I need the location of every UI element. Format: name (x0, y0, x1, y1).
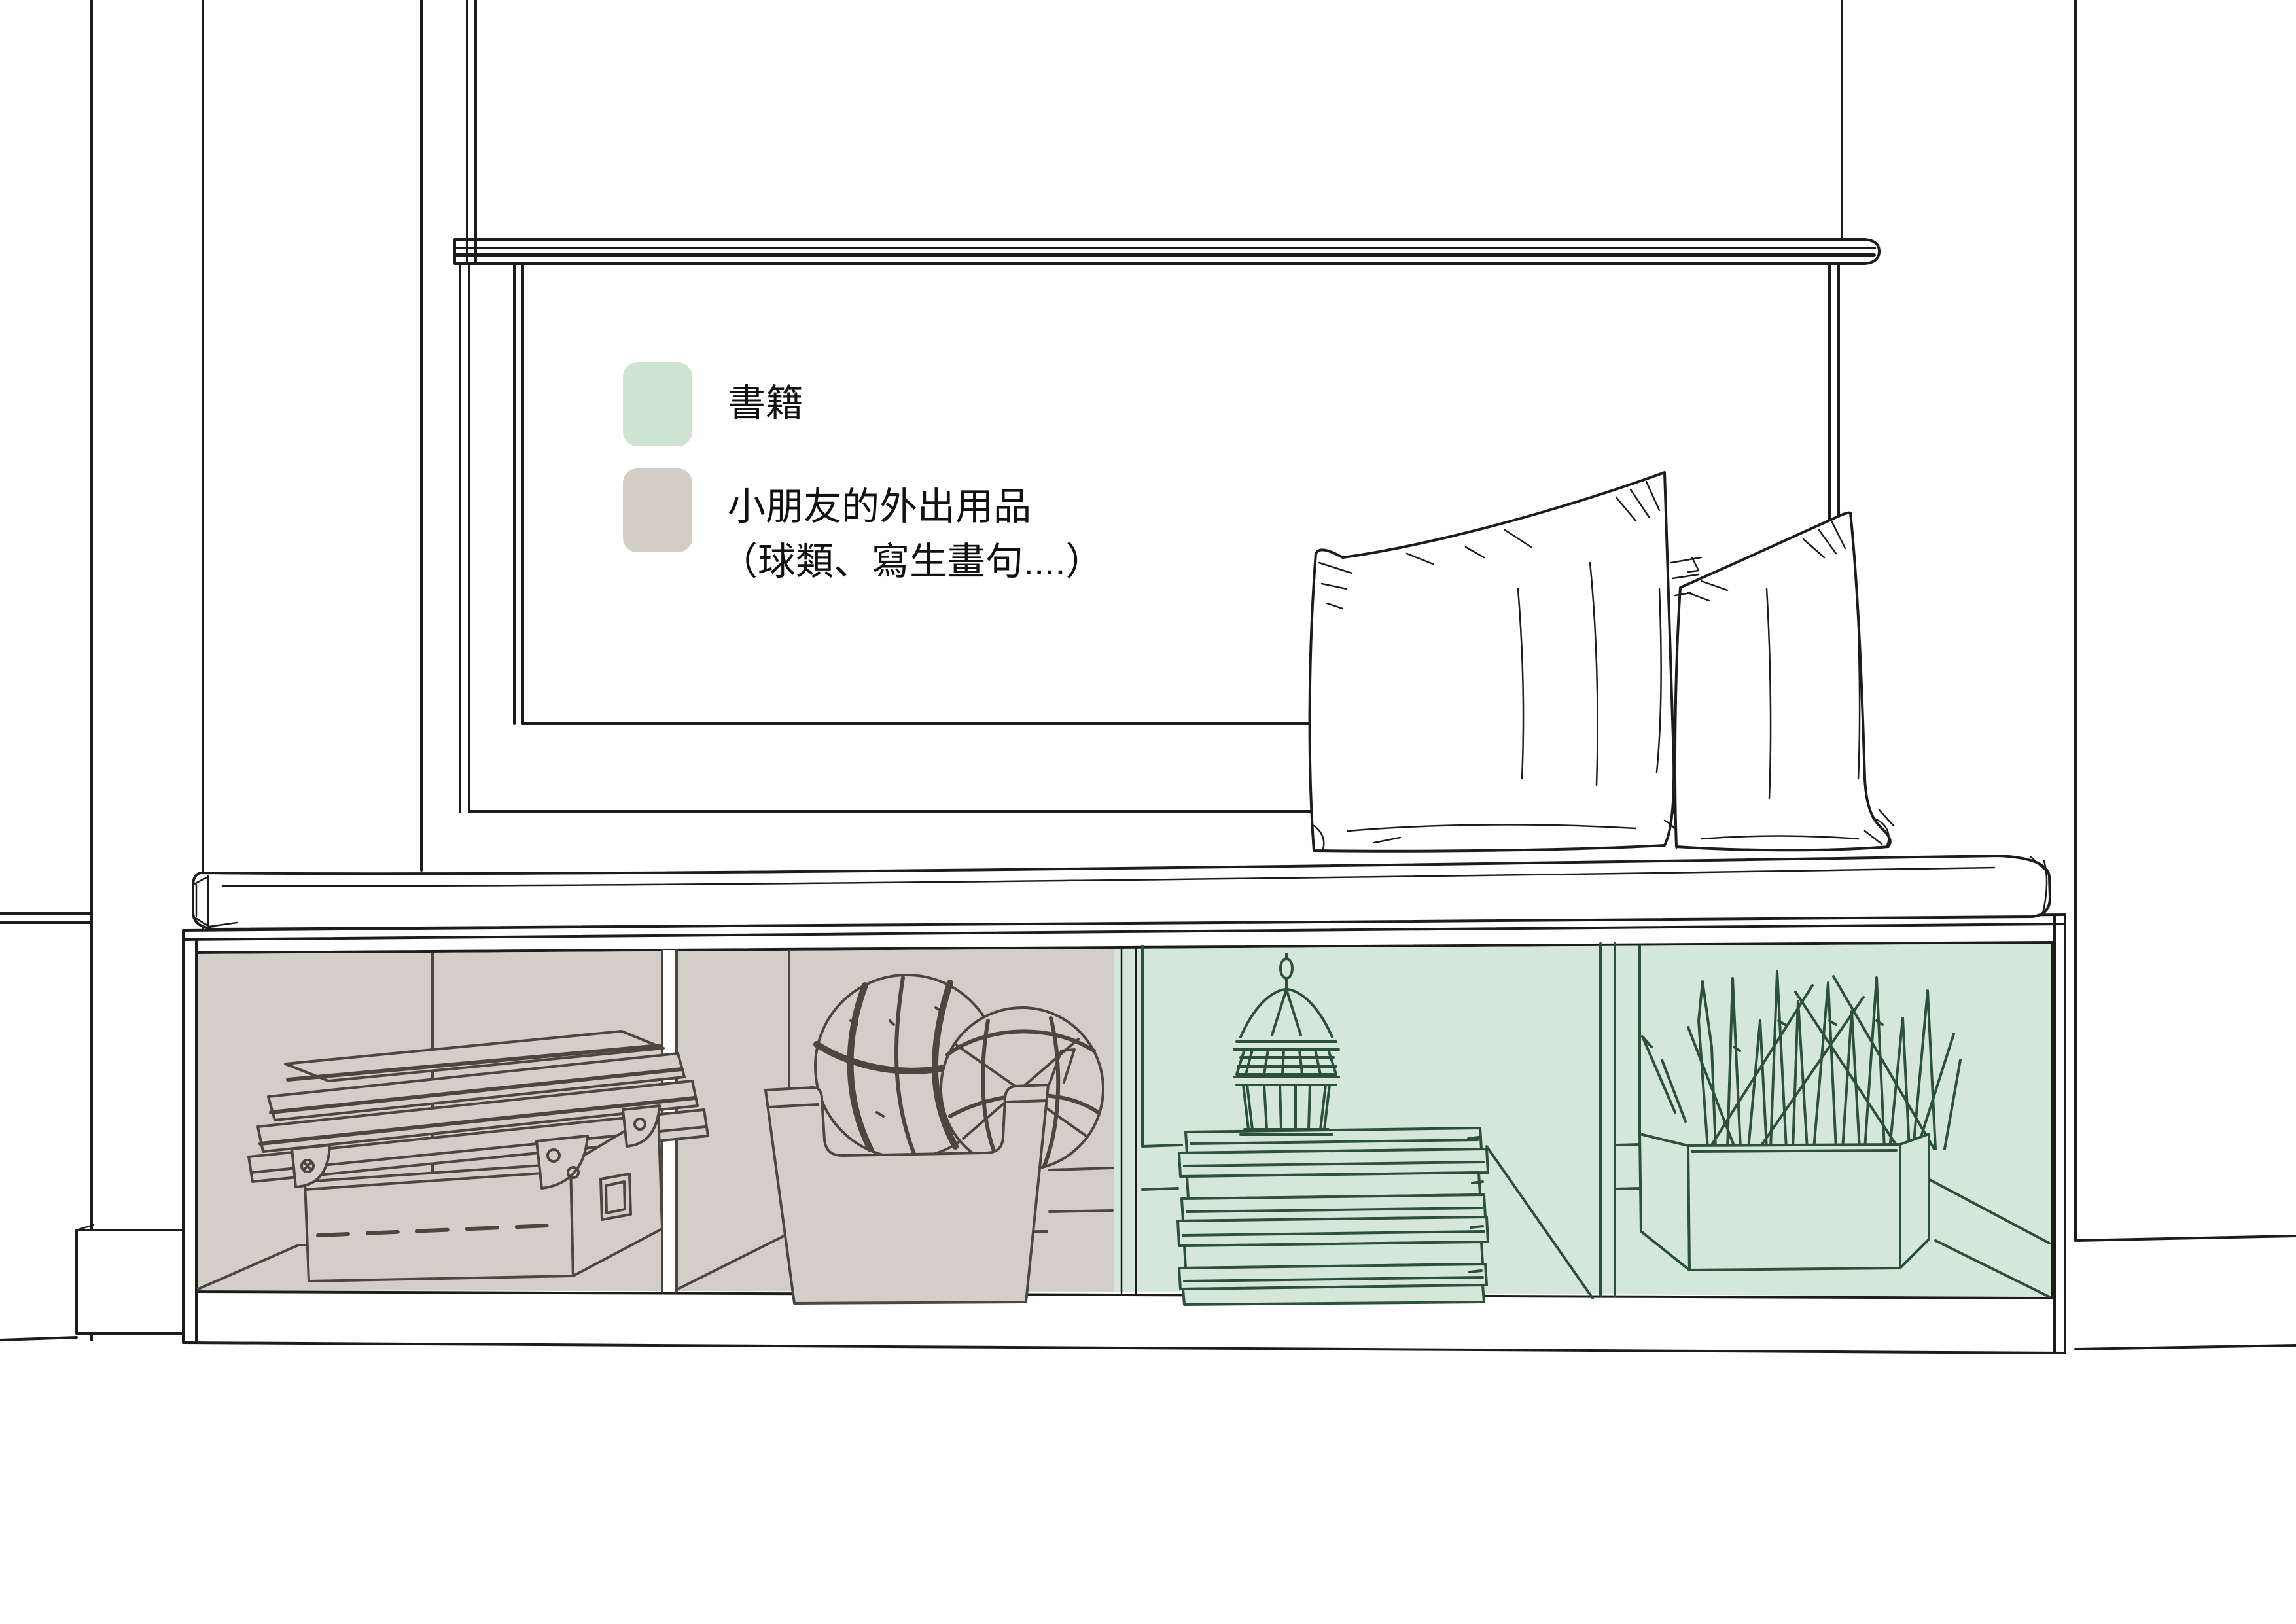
plant-box (1640, 1134, 1929, 1270)
pillow-left (1310, 472, 1686, 851)
blind-bottom-bar (455, 239, 1879, 264)
baseboard-left (77, 1225, 183, 1333)
legend-label-books: 書籍 (728, 382, 804, 425)
legend-swatch-kids-outing (623, 468, 692, 552)
storage-bench (183, 915, 2065, 1353)
baseboard-right (2075, 1236, 2296, 1349)
pillow-right (1671, 513, 1894, 851)
legend-item-kids-outing: 小朋友的外出用品 （球類、寫生畫句....） (623, 468, 1103, 583)
window-casing (421, 0, 476, 870)
cushion-outline (193, 856, 2050, 929)
roller-blind (455, 0, 1879, 264)
legend: 書籍 小朋友的外出用品 （球類、寫生畫句....） (623, 362, 1103, 583)
legend-item-books: 書籍 (623, 362, 804, 446)
legend-swatch-books (623, 362, 692, 446)
book-stack-upper (1179, 1128, 1488, 1221)
legend-note-kids-outing: （球類、寫生畫句....） (720, 540, 1103, 583)
elevation-drawing: 書籍 小朋友的外出用品 （球類、寫生畫句....） (0, 0, 2296, 1624)
legend-label-kids-outing: 小朋友的外出用品 (728, 485, 1031, 528)
bench-cushion (193, 856, 2050, 929)
left-wall (0, 0, 203, 1340)
